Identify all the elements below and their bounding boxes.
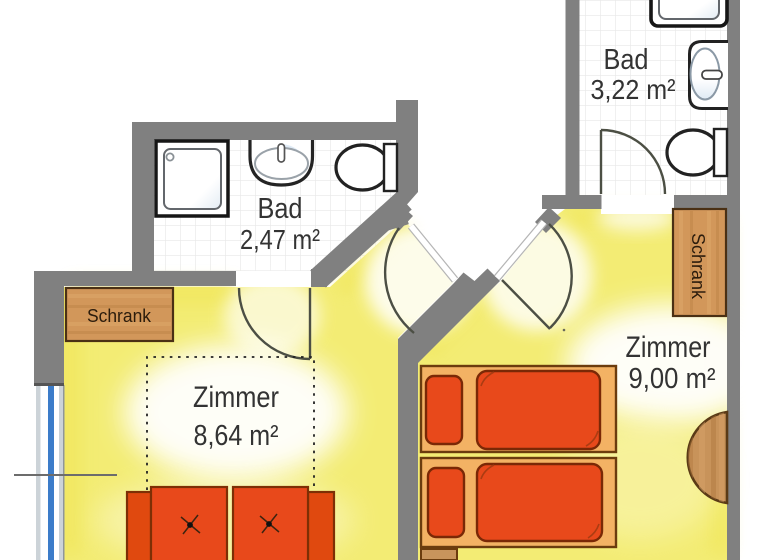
svg-text:Bad: Bad xyxy=(604,44,649,76)
svg-text:2,47 m²: 2,47 m² xyxy=(240,224,320,255)
svg-text:Bad: Bad xyxy=(258,193,303,225)
svg-text:Schrank: Schrank xyxy=(87,306,152,326)
svg-text:9,00 m²: 9,00 m² xyxy=(629,363,716,395)
svg-text:Zimmer: Zimmer xyxy=(626,331,711,364)
svg-text:8,64 m²: 8,64 m² xyxy=(194,420,279,452)
svg-text:Schrank: Schrank xyxy=(688,233,708,300)
svg-text:Zimmer: Zimmer xyxy=(193,381,279,414)
svg-text:3,22 m²: 3,22 m² xyxy=(591,74,676,105)
